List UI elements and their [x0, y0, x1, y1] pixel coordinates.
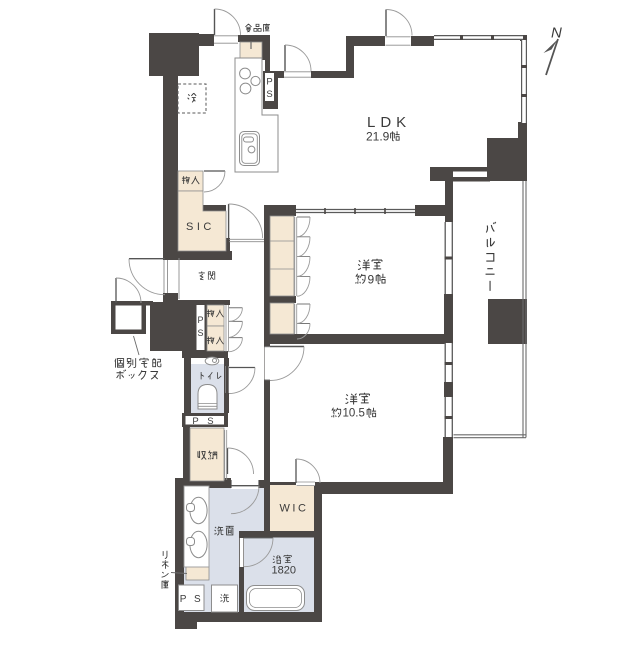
svg-text:P S: P S [192, 416, 216, 427]
svg-text:P: P [197, 315, 203, 325]
svg-text:9: 9 [368, 273, 375, 287]
svg-text:P S: P S [180, 594, 203, 605]
svg-text:10.5: 10.5 [343, 408, 365, 420]
svg-text:WIC: WIC [280, 503, 309, 515]
svg-text:21.9: 21.9 [366, 130, 390, 144]
svg-text:1820: 1820 [272, 565, 296, 577]
svg-text:LDK: LDK [367, 114, 411, 131]
svg-text:S: S [197, 328, 203, 338]
svg-text:S: S [266, 89, 272, 100]
svg-text:P: P [266, 77, 272, 88]
svg-text:SIC: SIC [186, 221, 215, 233]
svg-text:N: N [551, 25, 562, 42]
